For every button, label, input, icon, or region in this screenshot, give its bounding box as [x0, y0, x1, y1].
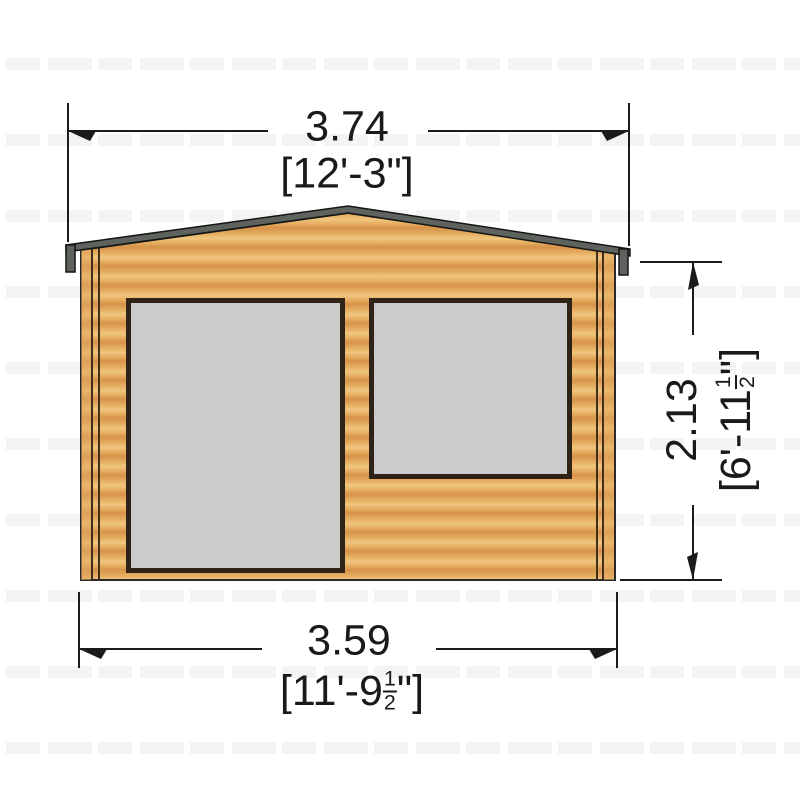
bottom-imperial-fraction: 12 [383, 669, 397, 714]
bottom-imperial-prefix: [11'-9 [280, 667, 383, 715]
left-window-pane [131, 303, 340, 568]
left-corner-log [81, 247, 91, 580]
side-height-imperial-label: [6'-1112"] [709, 348, 763, 492]
side-height-label: 2.13 [6'-1112"] [655, 348, 763, 492]
fraction-denominator: 2 [735, 375, 759, 389]
fraction-numerator: 1 [713, 375, 735, 389]
side-height-metric-label: 2.13 [655, 348, 709, 492]
bottom-width-metric-label: 3.59 [307, 620, 391, 663]
right-drip-edge [619, 249, 628, 275]
right-window-pane [374, 303, 567, 474]
bottom-width-imperial-label: [11'-912"] [280, 669, 424, 714]
side-imperial-prefix: [6'-11 [712, 389, 760, 492]
side-imperial-suffix: "] [712, 348, 760, 375]
bottom-dim-arrow-left [79, 649, 107, 659]
elevation-diagram: 3.74 [12'-3"] 3.59 [11'-912"] 2.13 [6'-1… [0, 0, 800, 800]
left-drip-edge [66, 245, 75, 272]
top-dim-arrow-right [601, 131, 629, 141]
side-imperial-fraction: 12 [713, 375, 758, 389]
right-corner-log [603, 252, 614, 580]
top-width-metric-label: 3.74 [305, 106, 389, 149]
bottom-imperial-suffix: "] [397, 667, 424, 715]
height-dim-arrow-up [688, 262, 699, 290]
top-dim-arrow-left [68, 131, 96, 141]
bottom-dim-arrow-right [589, 649, 617, 659]
fraction-denominator: 2 [383, 690, 397, 714]
top-width-imperial-label: [12'-3"] [280, 153, 413, 196]
fraction-numerator: 1 [383, 669, 397, 691]
height-dim-arrow-down [687, 552, 698, 580]
